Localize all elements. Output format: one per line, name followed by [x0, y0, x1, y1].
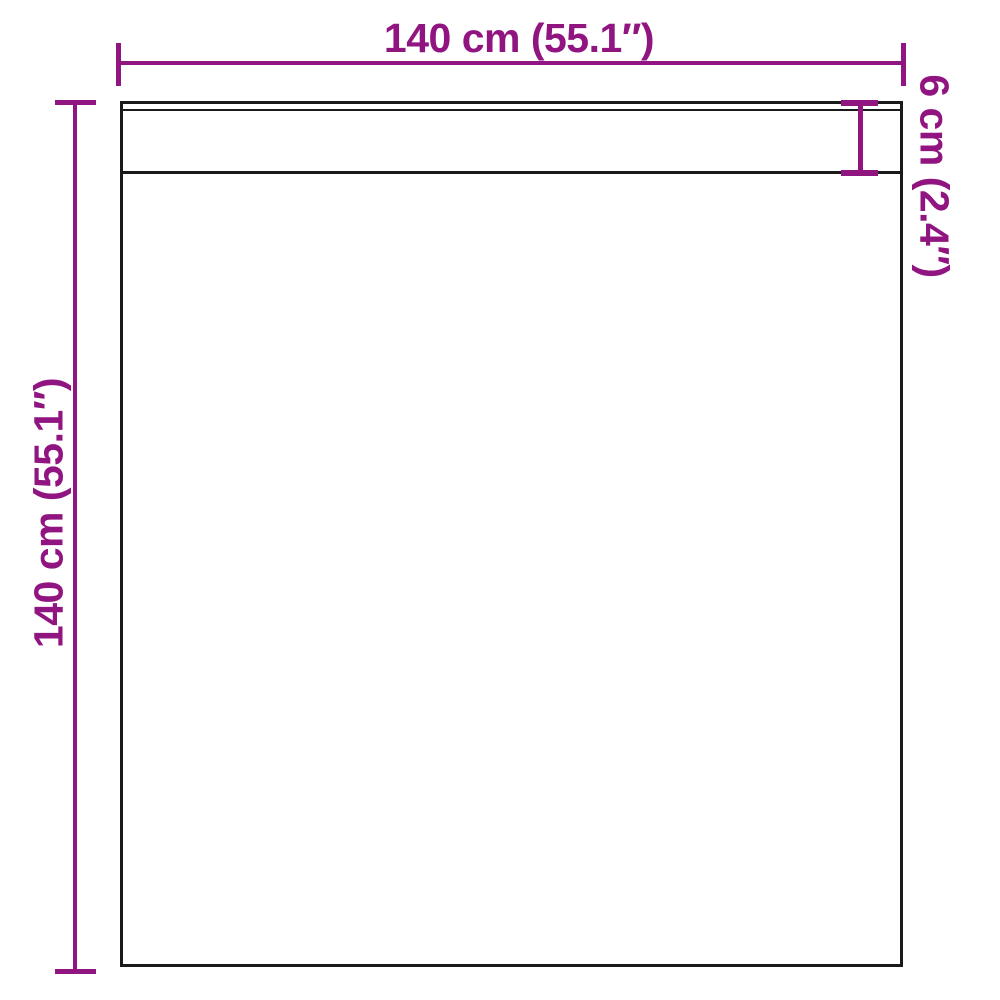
width-dimension-label: 140 cm (55.1″) [384, 18, 654, 59]
height-dimension-bottom-tick [55, 969, 96, 974]
hem-top-line [122, 109, 901, 111]
height-dimension-top-tick [55, 100, 96, 105]
product-outline [120, 101, 903, 967]
height-dimension-line [73, 101, 77, 973]
hem-dimension-label: 6 cm (2.4″) [914, 74, 955, 277]
hem-dimension-line [858, 103, 863, 173]
hem-dimension-bottom-tick [841, 170, 878, 176]
height-dimension-label: 140 cm (55.1″) [29, 378, 70, 648]
hem-dimension-top-tick [841, 100, 878, 106]
width-dimension-line [117, 61, 906, 65]
hem-bottom-line [122, 171, 901, 174]
width-dimension-left-tick [116, 43, 121, 86]
width-dimension-right-tick [901, 43, 906, 86]
product-dimension-diagram: 140 cm (55.1″) 140 cm (55.1″) 6 cm (2.4″… [0, 0, 1000, 1000]
